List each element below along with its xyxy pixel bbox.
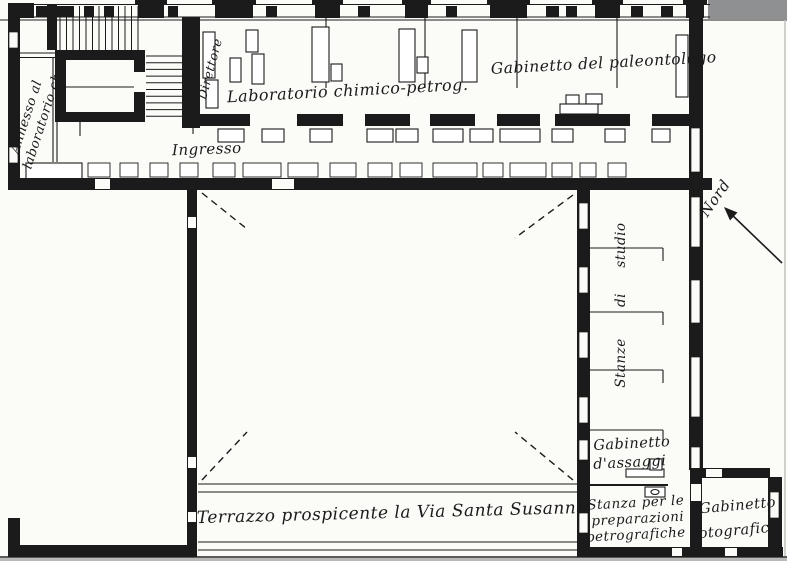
door-opening: [134, 72, 145, 92]
facade-piers: [135, 0, 707, 18]
room-label-stanze: Stanze: [613, 338, 629, 388]
right-wing-west-wall: [577, 190, 590, 547]
room-label-studio: studio: [613, 222, 629, 267]
door-opening: [672, 548, 682, 556]
room-label-fotografico-line1: Gabinetto: [699, 495, 777, 518]
floor-plan-scan: Annesso al laboratorio ch. Direttore Lab…: [0, 0, 787, 561]
vault-room: [55, 50, 145, 122]
garden-west-wall: [187, 190, 197, 557]
room-label-ingresso: Ingresso: [171, 139, 242, 159]
courtyard-window-row: [88, 163, 626, 177]
north-arrow-icon: [724, 207, 782, 263]
scan-gray-band: [708, 0, 787, 19]
window-slot: [691, 447, 700, 469]
room-label-assaggi-line1: Gabinetto: [593, 434, 671, 454]
window-slot: [579, 397, 588, 423]
window-slot: [691, 280, 700, 323]
door-opening: [188, 512, 196, 522]
west-outer-wall: [8, 3, 20, 190]
direttore-wall: [182, 17, 200, 128]
garden-wall-stub: [8, 518, 20, 557]
window-slot: [9, 32, 18, 48]
east-outer-wall: [689, 17, 703, 470]
room-label-fotografico-line2: fotografico: [691, 519, 779, 543]
window-slot: [579, 203, 588, 229]
door-opening: [95, 179, 110, 189]
north-facade-wall: [8, 0, 710, 18]
terrace-label: Terrazzo prospicente la Via Santa Susann…: [197, 498, 588, 528]
window-slot: [579, 267, 588, 293]
door-opening: [725, 548, 737, 556]
door-opening: [706, 469, 722, 477]
window-slot: [691, 357, 700, 417]
lab-divider-wall: [200, 114, 702, 126]
window-slot: [579, 440, 588, 460]
door-opening: [272, 179, 294, 189]
door-opening: [691, 484, 701, 501]
floor-plan: Annesso al laboratorio ch. Direttore Lab…: [0, 0, 787, 561]
window-slot: [579, 332, 588, 358]
window-slot: [691, 128, 700, 172]
corridor-tables: [218, 129, 670, 142]
door-opening: [188, 457, 196, 468]
room-label-di: di: [613, 293, 629, 307]
garden-south-wall: [10, 545, 197, 557]
courtyard-north-wall: [8, 178, 712, 190]
door-opening: [188, 217, 196, 228]
stair-flight-lower: [146, 56, 182, 116]
south-wall: [577, 547, 783, 557]
courtyard-corner-dashes: [202, 193, 573, 480]
